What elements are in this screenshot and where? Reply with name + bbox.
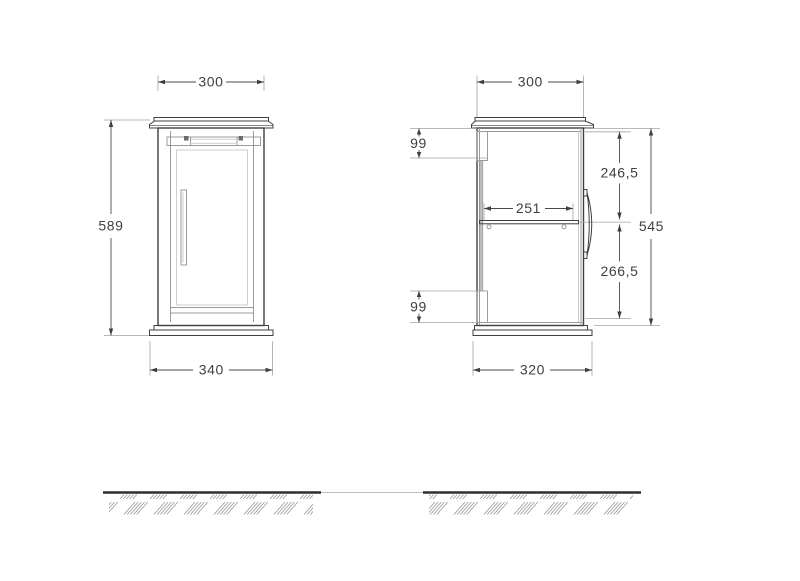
drawing-svg: 300 589 340 (0, 0, 800, 581)
shelf-pin-right (562, 225, 566, 229)
shelf-pin-left (487, 225, 491, 229)
door-edge-strip (480, 161, 483, 292)
front-width-bottom-label: 340 (199, 361, 224, 377)
technical-drawing-canvas: 300 589 340 (0, 0, 800, 581)
side-door-handle (584, 190, 592, 259)
crown-molding (150, 118, 274, 129)
door-panel (177, 150, 248, 305)
hinge-pin-right (239, 136, 244, 141)
door-handle (181, 190, 187, 265)
mounting-block-bottom (477, 291, 488, 323)
dim-side-shelf-to-bottom: 266,5 (585, 225, 639, 319)
side-depth-top-label: 300 (518, 73, 543, 89)
ground-hatch-right (429, 495, 633, 515)
cabinet-body (158, 128, 264, 326)
side-carcass-height-label: 545 (639, 218, 664, 234)
side-shelf-depth-label: 251 (516, 200, 541, 216)
dim-front-height: 589 (98, 120, 150, 336)
hinge-pin-left (184, 136, 189, 141)
side-top-to-shelf-label: 246,5 (600, 164, 638, 180)
dim-side-depth-top: 300 (477, 73, 584, 117)
dim-side-hinge-bottom: 99 (410, 291, 488, 323)
shelf (480, 221, 632, 229)
side-plinth-base (473, 326, 592, 336)
dim-side-depth-bottom: 320 (473, 341, 592, 377)
dim-front-width-bottom: 340 (150, 341, 273, 377)
dim-front-width-top: 300 (158, 73, 264, 91)
dim-side-carcass-height: 545 (585, 129, 664, 326)
side-crown-molding (472, 118, 594, 129)
ground (103, 493, 641, 515)
side-shelf-to-bottom-label: 266,5 (600, 263, 638, 279)
dim-side-hinge-top: 99 (410, 129, 488, 159)
front-height-label: 589 (98, 217, 123, 233)
dim-side-top-to-shelf: 246,5 (585, 132, 639, 220)
mounting-block-top (477, 132, 488, 161)
front-view: 300 589 340 (98, 73, 273, 377)
side-hinge-bottom-label: 99 (410, 298, 427, 314)
side-depth-bottom-label: 320 (520, 361, 545, 377)
side-hinge-top-label: 99 (410, 135, 427, 151)
side-view: 300 99 251 246, (410, 73, 664, 377)
dim-side-shelf-depth: 251 (484, 200, 573, 220)
side-body (477, 128, 584, 326)
hinge-bar (167, 136, 261, 146)
plinth-base (150, 326, 274, 336)
front-width-top-label: 300 (198, 73, 223, 89)
ground-hatch-left (109, 495, 313, 515)
